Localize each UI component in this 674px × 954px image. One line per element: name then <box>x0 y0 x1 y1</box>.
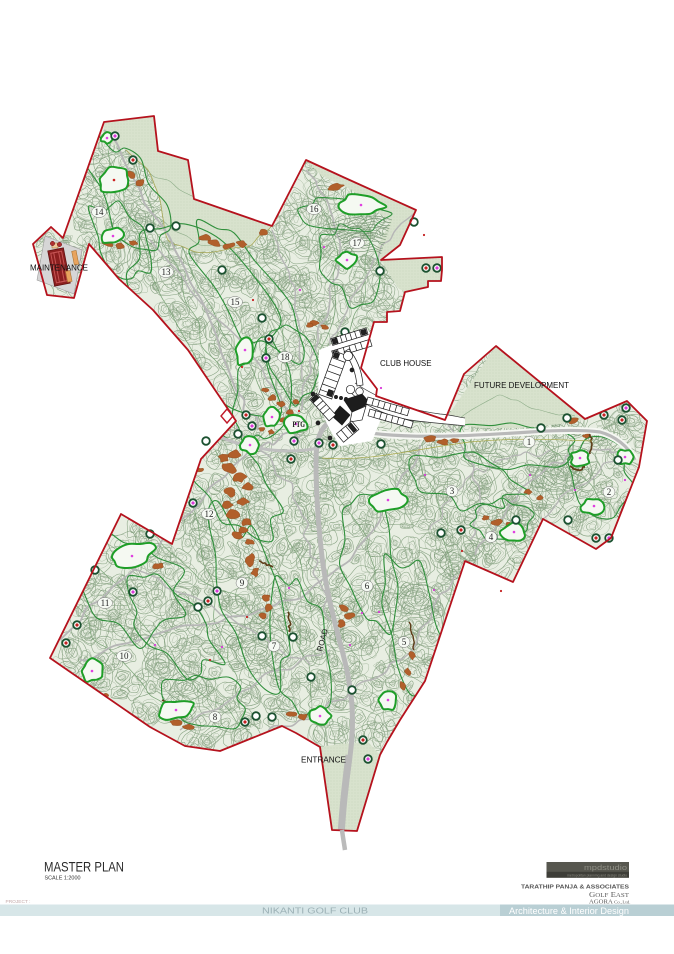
svg-text:SCALE 1:2000: SCALE 1:2000 <box>45 876 81 882</box>
svg-text:16: 16 <box>310 204 320 214</box>
svg-text:10: 10 <box>120 651 130 661</box>
svg-text:5: 5 <box>402 637 407 647</box>
svg-text:12: 12 <box>205 509 214 519</box>
svg-text:Architecture & Interior Design: Architecture & Interior Design <box>509 906 629 916</box>
svg-text:7: 7 <box>272 641 277 651</box>
svg-text:MAINTENANCE: MAINTENANCE <box>30 263 88 273</box>
svg-text:13: 13 <box>162 267 172 277</box>
svg-text:NIKANTI GOLF CLUB: NIKANTI GOLF CLUB <box>262 906 369 916</box>
svg-text:ENTRANCE: ENTRANCE <box>301 755 346 765</box>
svg-text:9: 9 <box>240 578 245 588</box>
svg-text:4: 4 <box>489 532 494 542</box>
svg-text:17: 17 <box>353 238 363 248</box>
svg-text:FUTURE DEVELOPMENT: FUTURE DEVELOPMENT <box>474 381 569 390</box>
svg-text:metropolitan planning and desi: metropolitan planning and design studio <box>567 873 627 877</box>
svg-text:18: 18 <box>281 352 291 362</box>
svg-text:1: 1 <box>527 437 532 447</box>
svg-text:MASTER PLAN: MASTER PLAN <box>44 860 124 875</box>
svg-text:14: 14 <box>95 207 105 217</box>
svg-text:8: 8 <box>213 712 218 722</box>
svg-text:2: 2 <box>607 487 612 497</box>
svg-text:CLUB HOUSE: CLUB HOUSE <box>380 358 432 368</box>
svg-text:AGORA Co.,Ltd.: AGORA Co.,Ltd. <box>589 899 631 906</box>
svg-text:PTG: PTG <box>293 420 306 429</box>
svg-text:15: 15 <box>231 297 241 307</box>
svg-text:6: 6 <box>365 581 370 591</box>
svg-text:mpdstudio: mpdstudio <box>584 865 627 872</box>
svg-text:11: 11 <box>101 598 110 608</box>
svg-text:3: 3 <box>450 486 455 496</box>
svg-text:PROJECT :: PROJECT : <box>6 899 31 905</box>
